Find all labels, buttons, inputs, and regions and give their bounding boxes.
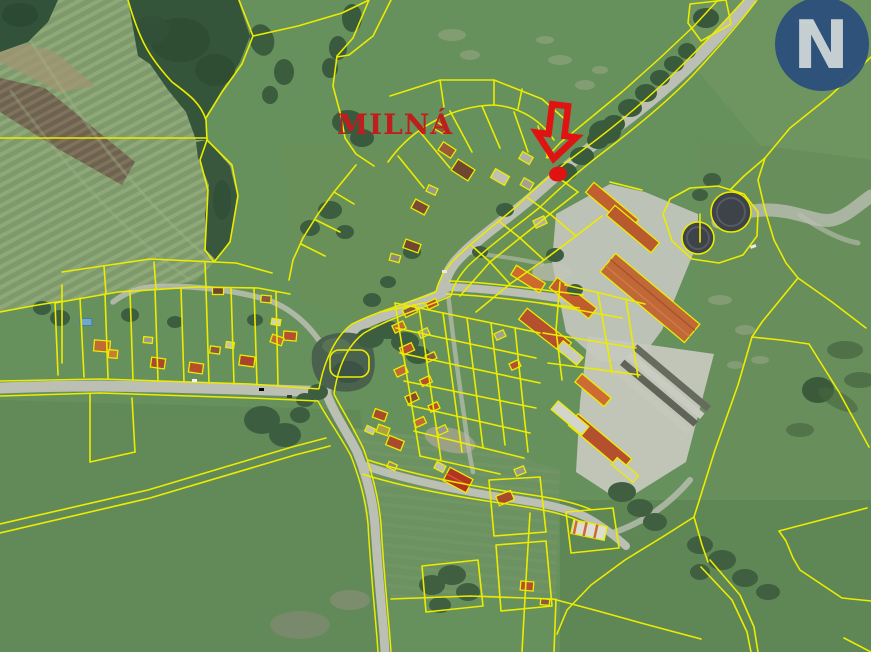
aerial-cadastral-map[interactable]: MILNÁ N [0,0,871,652]
watermark-logo: N [775,0,869,91]
place-label: MILNÁ [337,108,453,141]
logo-letter: N [793,6,849,84]
